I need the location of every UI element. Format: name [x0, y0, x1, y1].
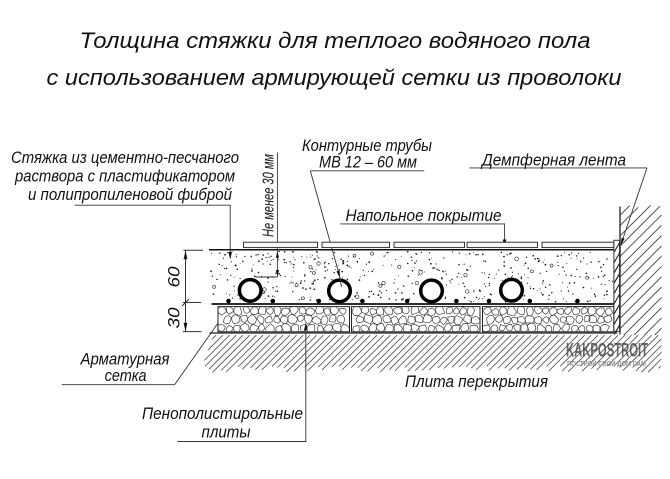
svg-text:30: 30: [165, 307, 184, 329]
svg-text:МВ 12 – 60 мм: МВ 12 – 60 мм: [319, 153, 417, 172]
svg-text:сетка: сетка: [105, 366, 147, 385]
svg-text:Напольное покрытие: Напольное покрытие: [346, 206, 502, 225]
svg-text:плиты: плиты: [202, 423, 251, 442]
svg-text:Не менее 30 мм: Не менее 30 мм: [261, 154, 278, 237]
svg-text:Толщина стяжки для теплого вод: Толщина стяжки для теплого водяного пола: [80, 28, 591, 53]
svg-text:Плита перекрытия: Плита перекрытия: [405, 373, 548, 391]
svg-text:KAKPOSTROIT: KAKPOSTROIT: [566, 341, 648, 362]
svg-text:и полипропиленовой фиброй: и полипропиленовой фиброй: [28, 185, 232, 204]
svg-text:с использованием армирующей се: с использованием армирующей сетки из про…: [47, 65, 622, 90]
svg-text:60: 60: [165, 266, 184, 288]
svg-text:Пенополистирольные: Пенополистирольные: [142, 404, 303, 423]
svg-text:раствора с пластификатором: раствора с пластификатором: [14, 167, 235, 186]
svg-text:ПОСТРОЙ СВОЙ ДОМ САМ: ПОСТРОЙ СВОЙ ДОМ САМ: [567, 359, 646, 368]
svg-text:Демпферная лента: Демпферная лента: [480, 150, 626, 169]
svg-text:Стяжка из цементно-песчаного: Стяжка из цементно-песчаного: [11, 148, 239, 167]
